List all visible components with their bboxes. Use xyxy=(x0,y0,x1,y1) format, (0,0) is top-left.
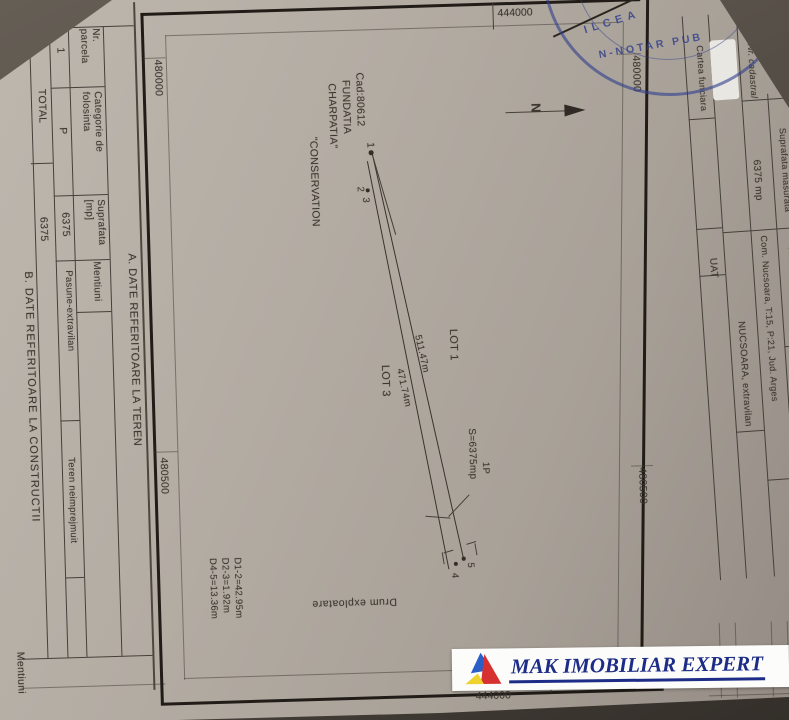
document-paper: A. DATE REFERITOARE LA TEREN B. DATE REF… xyxy=(0,0,789,720)
document-content: A. DATE REFERITOARE LA TEREN B. DATE REF… xyxy=(0,0,789,720)
right-form-table: Cartea funciara UAT NUCSOARA, extravilan… xyxy=(0,0,789,720)
suprafata-masurata-value: 6375 mp xyxy=(746,159,766,222)
rule-line xyxy=(696,227,722,230)
watermark-banner: MAK IMOBILIAR EXPERT xyxy=(452,645,789,691)
photo-scene: A. DATE REFERITOARE LA TEREN B. DATE REF… xyxy=(0,0,789,720)
watermark-text: MAK IMOBILIAR EXPERT xyxy=(509,651,765,683)
bottom-mentiuni-partial: Mentiuni xyxy=(7,652,28,720)
adresa-value: Com. Nucsoara, T:15, P:21, Jud. Arges xyxy=(753,235,786,486)
agency-logo-icon xyxy=(464,652,502,685)
uat-label: UAT xyxy=(702,258,721,299)
